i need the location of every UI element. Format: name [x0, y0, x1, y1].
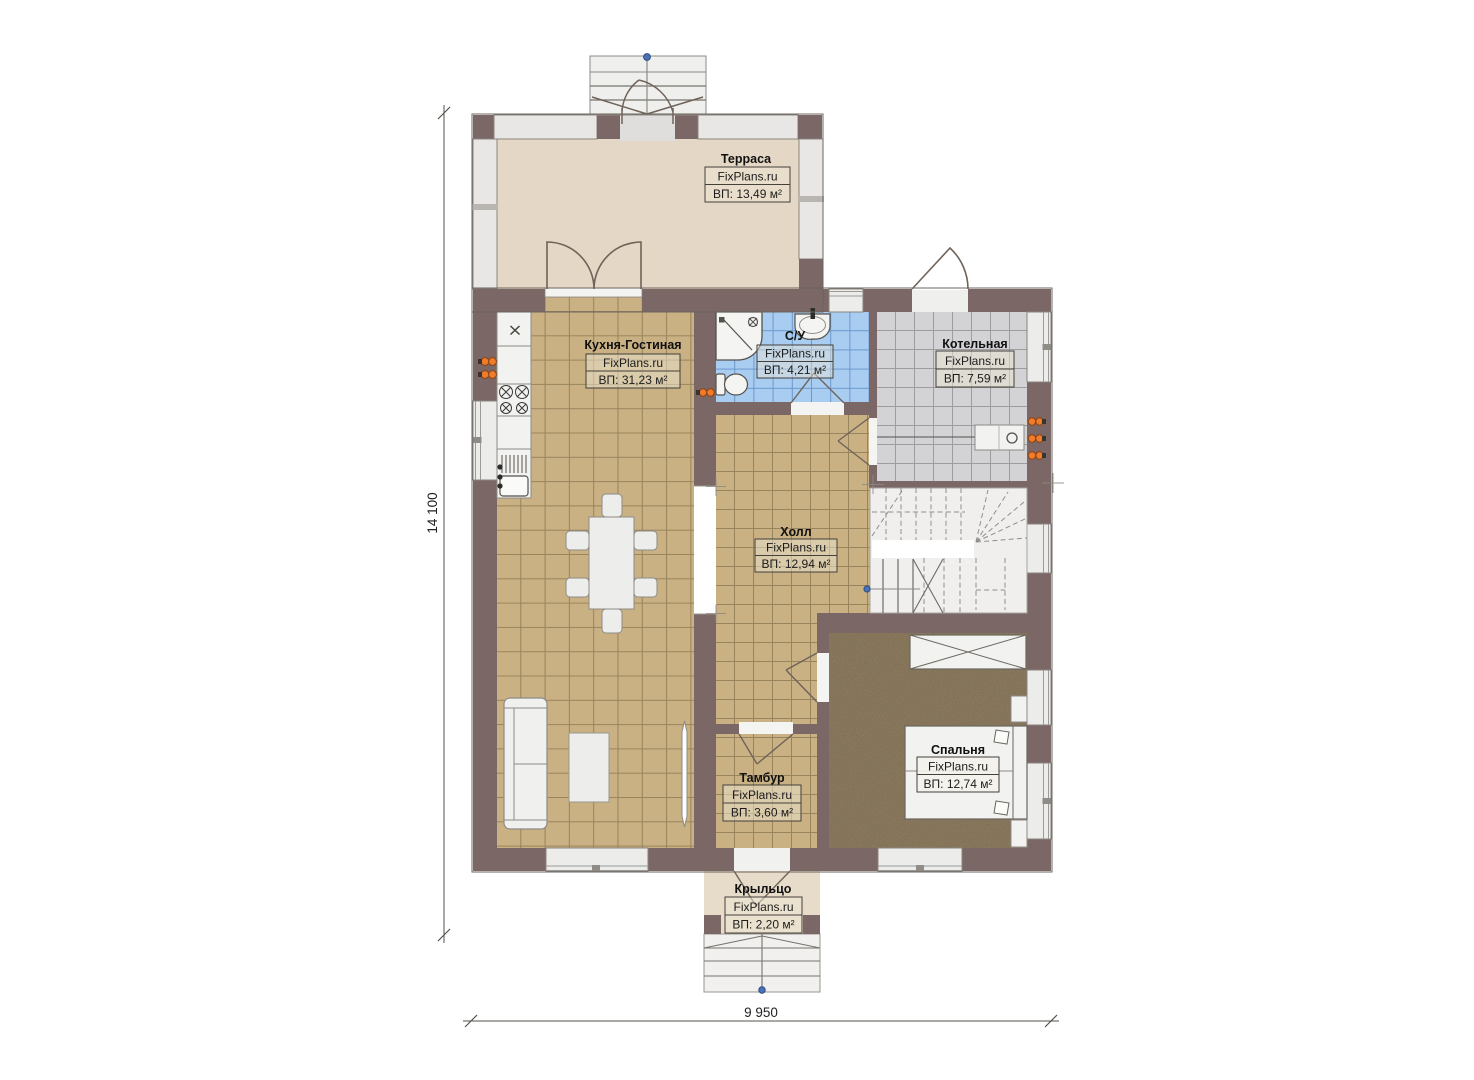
- svg-text:Терраса: Терраса: [721, 152, 772, 166]
- svg-text:14 100: 14 100: [425, 492, 440, 533]
- svg-text:FixPlans.ru: FixPlans.ru: [766, 541, 826, 555]
- svg-text:ВП: 31,23 м²: ВП: 31,23 м²: [599, 373, 668, 387]
- svg-text:9 950: 9 950: [744, 1005, 778, 1020]
- svg-text:ВП: 13,49 м²: ВП: 13,49 м²: [713, 187, 782, 201]
- svg-text:Крыльцо: Крыльцо: [735, 882, 792, 896]
- svg-text:FixPlans.ru: FixPlans.ru: [732, 788, 792, 802]
- svg-text:FixPlans.ru: FixPlans.ru: [717, 170, 777, 184]
- svg-text:Спальня: Спальня: [931, 743, 985, 757]
- svg-text:ВП: 2,20 м²: ВП: 2,20 м²: [732, 918, 794, 932]
- svg-text:FixPlans.ru: FixPlans.ru: [945, 354, 1005, 368]
- svg-text:ВП: 12,74 м²: ВП: 12,74 м²: [924, 777, 993, 791]
- svg-text:FixPlans.ru: FixPlans.ru: [928, 760, 988, 774]
- svg-text:Холл: Холл: [780, 525, 811, 539]
- svg-text:Котельная: Котельная: [942, 337, 1007, 351]
- svg-text:FixPlans.ru: FixPlans.ru: [765, 347, 825, 361]
- svg-text:Кухня-Гостиная: Кухня-Гостиная: [584, 338, 681, 352]
- svg-text:ВП: 12,94 м²: ВП: 12,94 м²: [762, 557, 831, 571]
- svg-text:ВП: 3,60 м²: ВП: 3,60 м²: [731, 806, 793, 820]
- svg-text:ВП: 4,21 м²: ВП: 4,21 м²: [764, 363, 826, 377]
- svg-text:FixPlans.ru: FixPlans.ru: [733, 900, 793, 914]
- svg-text:ВП: 7,59 м²: ВП: 7,59 м²: [944, 372, 1006, 386]
- svg-text:С/У: С/У: [785, 329, 806, 343]
- svg-text:FixPlans.ru: FixPlans.ru: [603, 356, 663, 370]
- svg-text:Тамбур: Тамбур: [739, 771, 785, 785]
